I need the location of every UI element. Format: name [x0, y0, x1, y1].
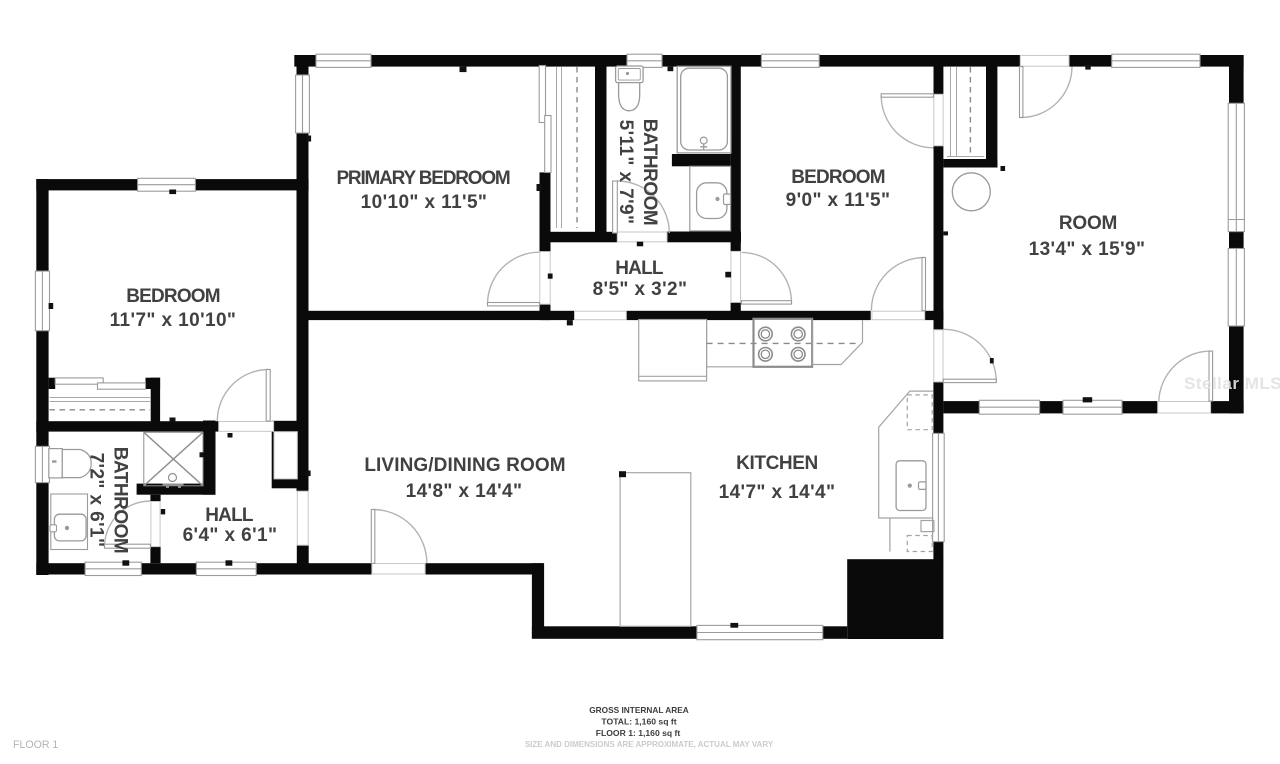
svg-text:8'5" x 3'2": 8'5" x 3'2": [593, 279, 688, 300]
svg-text:BEDROOM: BEDROOM: [126, 286, 220, 307]
svg-text:LIVING/DINING ROOM: LIVING/DINING ROOM: [364, 455, 565, 476]
svg-text:TOTAL: 1,160 sq ft: TOTAL: 1,160 sq ft: [601, 717, 676, 727]
svg-text:BEDROOM: BEDROOM: [791, 167, 885, 188]
svg-text:11'7" x 10'10": 11'7" x 10'10": [110, 310, 237, 331]
svg-text:BATHROOM: BATHROOM: [110, 447, 131, 553]
svg-text:7'2" x 6'1": 7'2" x 6'1": [86, 453, 107, 548]
svg-text:KITCHEN: KITCHEN: [736, 453, 818, 474]
svg-text:10'10" x 11'5": 10'10" x 11'5": [361, 192, 488, 213]
svg-text:GROSS INTERNAL AREA: GROSS INTERNAL AREA: [589, 705, 689, 715]
svg-text:HALL: HALL: [615, 258, 664, 279]
svg-text:PRIMARY BEDROOM: PRIMARY BEDROOM: [336, 168, 509, 189]
svg-text:FLOOR 1: 1,160 sq ft: FLOOR 1: 1,160 sq ft: [596, 728, 681, 738]
svg-text:SIZE AND DIMENSIONS ARE APPROX: SIZE AND DIMENSIONS ARE APPROXIMATE, ACT…: [525, 740, 774, 749]
svg-text:6'4" x 6'1": 6'4" x 6'1": [183, 525, 278, 546]
svg-text:13'4" x 15'9": 13'4" x 15'9": [1029, 239, 1146, 260]
svg-text:ROOM: ROOM: [1059, 213, 1117, 234]
svg-text:FLOOR 1: FLOOR 1: [13, 739, 58, 751]
svg-text:HALL: HALL: [205, 505, 254, 526]
svg-text:5'11" x 7'9": 5'11" x 7'9": [615, 120, 636, 225]
svg-text:14'7" x 14'4": 14'7" x 14'4": [719, 482, 836, 503]
svg-text:BATHROOM: BATHROOM: [639, 119, 660, 225]
svg-text:Stellar MLS: Stellar MLS: [1184, 374, 1280, 393]
svg-text:9'0" x 11'5": 9'0" x 11'5": [786, 190, 891, 211]
svg-text:14'8" x 14'4": 14'8" x 14'4": [406, 481, 523, 502]
